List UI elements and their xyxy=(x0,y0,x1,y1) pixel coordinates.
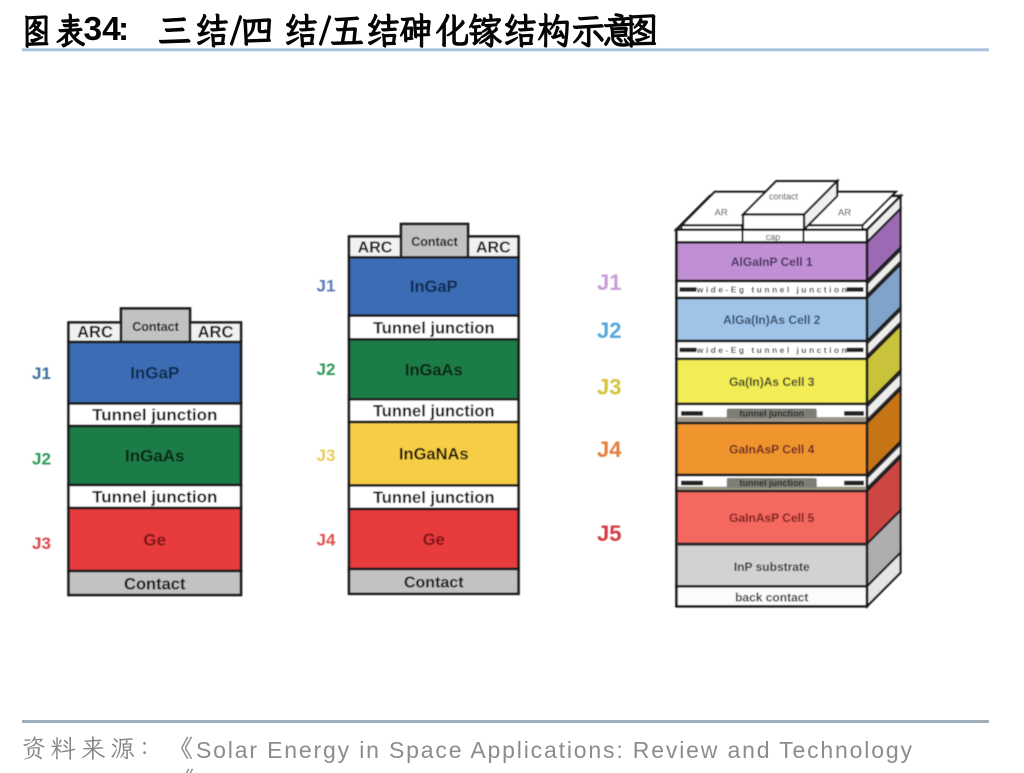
svg-text:AR: AR xyxy=(715,208,728,219)
svg-text:J2: J2 xyxy=(597,318,621,343)
svg-text:ARC: ARC xyxy=(476,240,511,257)
svg-text:AR: AR xyxy=(838,208,851,219)
svg-text:Contact: Contact xyxy=(404,575,464,592)
svg-text:contact: contact xyxy=(769,192,799,202)
svg-text:J4: J4 xyxy=(317,531,336,550)
svg-text:J2: J2 xyxy=(32,450,51,469)
svg-text:34: 34 xyxy=(84,11,122,48)
svg-text:J5: J5 xyxy=(597,521,621,546)
svg-text:Contact: Contact xyxy=(132,320,179,334)
svg-text:InGaNAs: InGaNAs xyxy=(399,446,469,464)
svg-text:AlGaInP Cell 1: AlGaInP Cell 1 xyxy=(731,255,813,269)
svg-text:wide-Eg tunnel junction: wide-Eg tunnel junction xyxy=(696,345,847,355)
svg-text:J3: J3 xyxy=(597,375,621,400)
svg-text:InGaAs: InGaAs xyxy=(405,361,463,379)
svg-text:Contact: Contact xyxy=(124,576,186,594)
svg-text:J4: J4 xyxy=(597,437,622,462)
svg-text:Solar Energy in Space Applicat: Solar Energy in Space Applications: Revi… xyxy=(196,737,913,763)
svg-text:InGaAs: InGaAs xyxy=(125,447,185,466)
svg-text:cap: cap xyxy=(766,232,781,242)
svg-text:J1: J1 xyxy=(32,364,51,383)
svg-text:back contact: back contact xyxy=(735,591,808,605)
svg-text:Contact: Contact xyxy=(411,235,458,249)
svg-text:Tunnel junction: Tunnel junction xyxy=(373,320,495,338)
svg-text:Tunnel junction: Tunnel junction xyxy=(92,406,217,425)
svg-text:Tunnel junction: Tunnel junction xyxy=(373,489,495,507)
svg-text:tunnel junction: tunnel junction xyxy=(740,478,805,488)
svg-text:Ge: Ge xyxy=(423,531,445,549)
svg-text:J1: J1 xyxy=(597,270,621,295)
svg-text:InGaP: InGaP xyxy=(410,278,458,296)
svg-text:ARC: ARC xyxy=(198,324,234,342)
svg-text:J2: J2 xyxy=(317,360,336,379)
svg-text:Ge: Ge xyxy=(143,531,166,550)
svg-text:Tunnel junction: Tunnel junction xyxy=(373,403,495,421)
svg-text:ARC: ARC xyxy=(77,324,113,342)
svg-text:wide-Eg tunnel junction: wide-Eg tunnel junction xyxy=(696,285,847,295)
svg-text:GaInAsP Cell 4: GaInAsP Cell 4 xyxy=(729,443,814,457)
svg-text:J1: J1 xyxy=(317,277,336,296)
svg-text:AlGa(In)As Cell 2: AlGa(In)As Cell 2 xyxy=(723,313,821,327)
svg-text:J3: J3 xyxy=(317,446,336,465)
svg-text:Tunnel junction: Tunnel junction xyxy=(92,488,217,507)
svg-text:Ga(In)As Cell 3: Ga(In)As Cell 3 xyxy=(729,375,815,389)
svg-text:tunnel junction: tunnel junction xyxy=(740,409,805,419)
svg-text::: : xyxy=(118,11,129,48)
svg-text:J3: J3 xyxy=(32,534,51,553)
svg-text:InP substrate: InP substrate xyxy=(734,560,810,574)
svg-text:InGaP: InGaP xyxy=(130,364,179,383)
svg-text:ARC: ARC xyxy=(358,240,393,257)
svg-text:GaInAsP Cell 5: GaInAsP Cell 5 xyxy=(729,511,814,525)
